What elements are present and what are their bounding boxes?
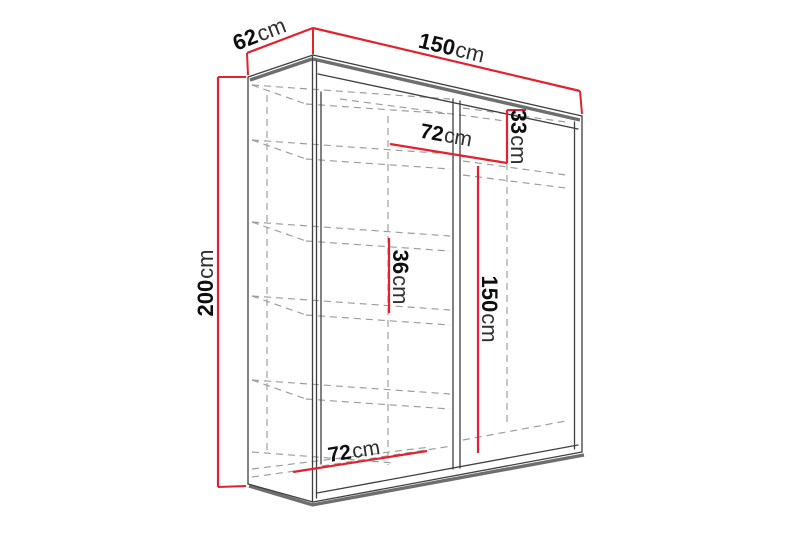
dimension-label-upper-section-width: 72cm xyxy=(418,120,474,152)
wardrobe-dimension-diagram: 62cm 150cm 200cm 72cm 33cm 36cm 150cm 72… xyxy=(0,0,800,533)
dimension-label-lower-section-width: 72cm xyxy=(326,436,381,467)
dimension-label-hanging-space-height: 150cm xyxy=(477,275,502,342)
dimension-label-top-compartment-height: 33cm xyxy=(506,110,531,165)
dimension-label-height: 200cm xyxy=(193,249,218,316)
wardrobe-rim-and-base-shadow xyxy=(249,59,584,505)
dimension-line-height xyxy=(218,77,246,487)
dimension-labels: 62cm 150cm 200cm 72cm 33cm 36cm 150cm 72… xyxy=(193,13,531,468)
diagram-canvas: 62cm 150cm 200cm 72cm 33cm 36cm 150cm 72… xyxy=(0,0,800,533)
dimension-label-shelf-spacing: 36cm xyxy=(388,250,413,305)
